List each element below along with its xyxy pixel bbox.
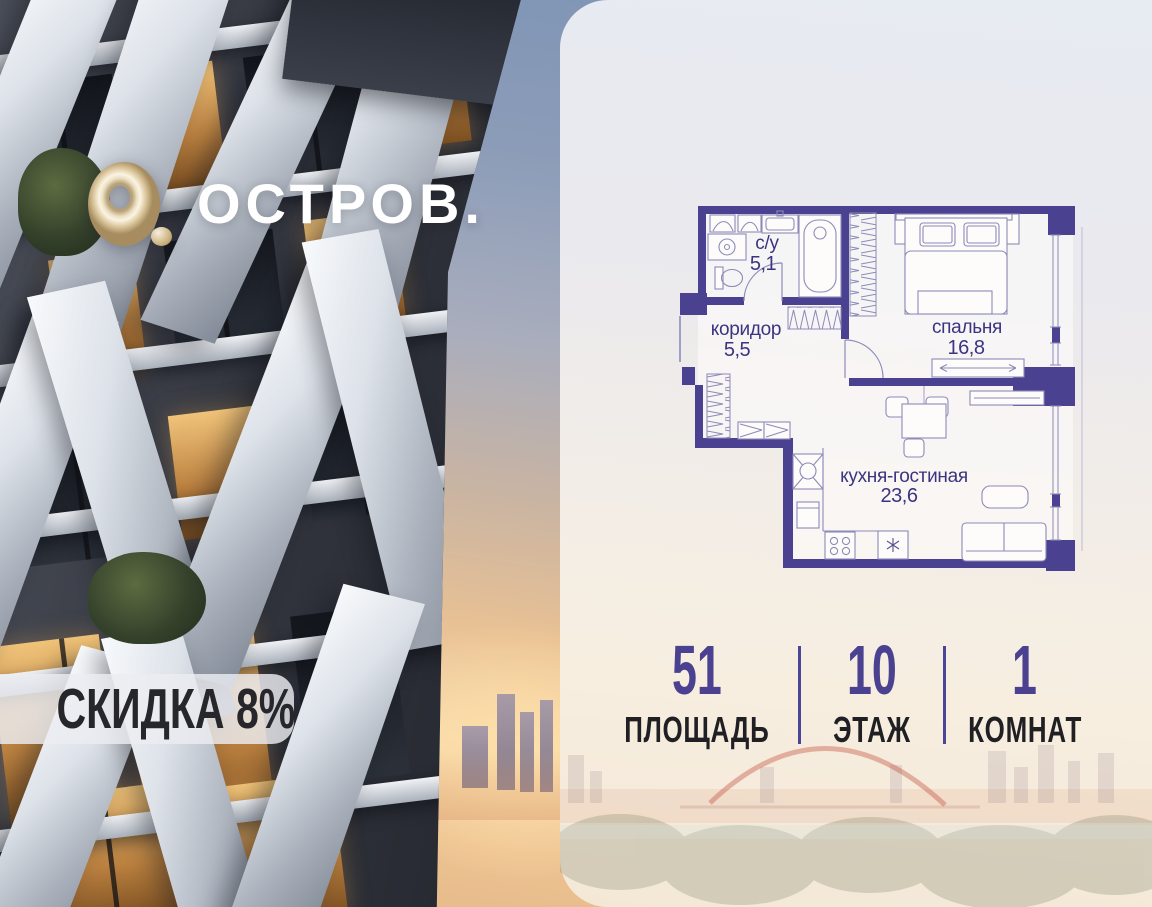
stat-rooms-value: 1 xyxy=(1005,638,1044,702)
panel-cityscape xyxy=(560,727,1152,907)
room-name: с/у xyxy=(755,233,779,254)
room-area: 5,5 xyxy=(724,339,751,361)
logo-mark-icon xyxy=(88,162,160,246)
room-area: 16,8 xyxy=(948,337,985,359)
room-area: 23,6 xyxy=(881,485,918,507)
discount-label: СКИДКА 8% xyxy=(57,676,296,742)
stat-floor-label: ЭТАЖ xyxy=(818,712,926,748)
brand-name: ОСТРОВ. xyxy=(197,176,485,232)
stat-rooms: 1 КОМНАТ xyxy=(946,638,1104,750)
stat-floor: 10 ЭТАЖ xyxy=(801,638,943,750)
discount-badge: СКИДКА 8% xyxy=(0,674,294,744)
room-area: 5,1 xyxy=(750,253,777,275)
stats-row: 51 ПЛОЩАДЬ 10 ЭТАЖ 1 КОМНАТ xyxy=(596,638,1104,750)
promo-card: ОСТРОВ. СКИДКА 8% xyxy=(0,0,1152,907)
balcony-plant xyxy=(88,552,206,644)
logo-dot-icon xyxy=(151,227,172,246)
info-panel: с/у 5,1 коридор 5,5 спальня 16,8 кухня-г… xyxy=(560,0,1152,907)
stat-rooms-label: КОМНАТ xyxy=(946,712,1104,748)
stat-area-value: 51 xyxy=(658,638,736,702)
room-name: кухня-гостиная xyxy=(840,466,968,487)
stat-area: 51 ПЛОЩАДЬ xyxy=(596,638,798,750)
stat-area-label: ПЛОЩАДЬ xyxy=(596,712,798,748)
floor-plan: с/у 5,1 коридор 5,5 спальня 16,8 кухня-г… xyxy=(678,199,1090,574)
brand-logo: ОСТРОВ. xyxy=(88,162,485,246)
room-name: спальня xyxy=(932,317,1002,338)
room-name: коридор xyxy=(711,319,781,340)
stat-floor-value: 10 xyxy=(833,638,911,702)
hall-cabinet xyxy=(738,422,790,439)
